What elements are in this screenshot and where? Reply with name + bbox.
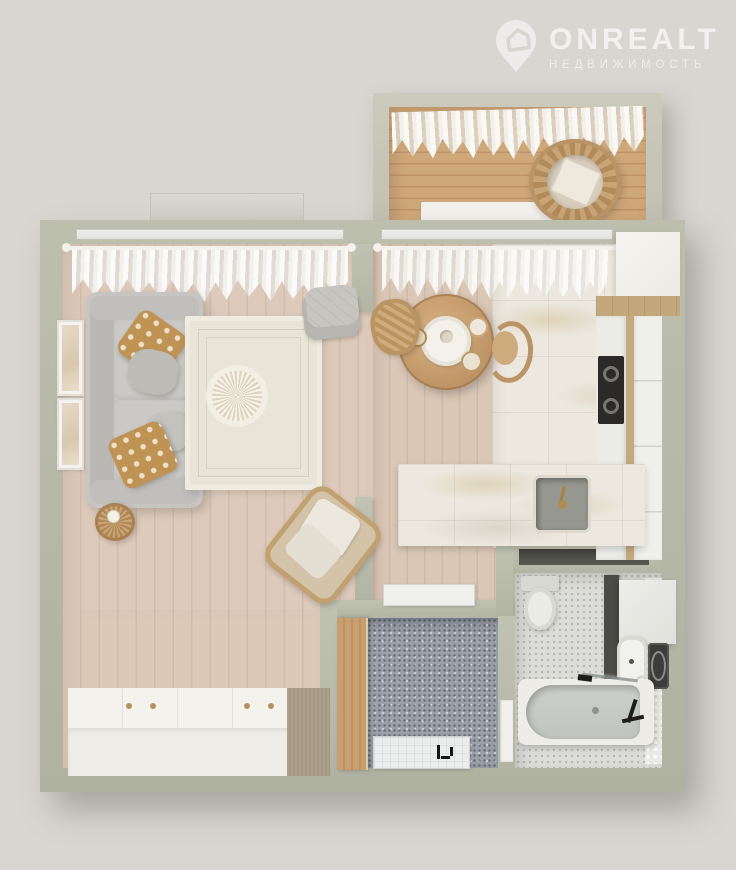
- living-curtain-rod: [66, 246, 352, 250]
- rug-medallion: [206, 365, 268, 427]
- hallway-wood-cabinet: [337, 618, 368, 770]
- shower-bar: [622, 715, 644, 723]
- brand-tagline: НЕДВИЖИМОСТЬ: [549, 59, 720, 71]
- house-pin-icon: [492, 18, 540, 74]
- burner: [603, 366, 619, 382]
- shower-fixture: [622, 699, 648, 727]
- wardrobe-end-section: [287, 688, 330, 776]
- exterior-window-sill: [150, 193, 304, 222]
- threshold-mat: [383, 584, 475, 606]
- kitchen-curtain-rod: [377, 246, 619, 250]
- vase: [440, 330, 453, 343]
- gold-knob: [268, 703, 274, 709]
- bathroom-door: [500, 700, 513, 762]
- wall-picture-frame: [57, 320, 84, 396]
- peninsula-counter: [398, 464, 645, 546]
- frame-artwork: [62, 325, 79, 391]
- cabinet-wood-top: [596, 296, 680, 316]
- wall-vestibule-bathroom: [496, 545, 513, 618]
- toilet: [524, 588, 556, 630]
- gold-knob: [126, 703, 132, 709]
- frame-artwork: [62, 403, 79, 465]
- bathroom-cabinet: [619, 580, 676, 644]
- round-side-table: [95, 503, 135, 541]
- burner: [603, 398, 619, 414]
- area-rug: [185, 316, 322, 490]
- floor-cushions: [300, 283, 365, 343]
- floor-plan-render: ONREALT НЕДВИЖИМОСТЬ: [0, 0, 736, 870]
- table-dish: [461, 351, 482, 372]
- washer-door: [651, 651, 666, 681]
- table-dish: [468, 317, 488, 337]
- refrigerator: [616, 232, 680, 296]
- entrance-doormat: [373, 736, 470, 769]
- hanging-egg-chair: [529, 139, 621, 225]
- watermark-logo: ONREALT НЕДВИЖИМОСТЬ: [492, 18, 720, 74]
- doormat-motif: [437, 744, 457, 761]
- tub-drain: [592, 707, 599, 714]
- sofa-backrest: [90, 302, 114, 498]
- logo-text: ONREALT НЕДВИЖИМОСТЬ: [549, 18, 720, 71]
- living-room-window: [76, 229, 344, 240]
- floor-cushion: [304, 283, 360, 328]
- gold-faucet-base: [558, 500, 567, 509]
- wardrobe: [68, 688, 330, 776]
- gold-knob: [244, 703, 250, 709]
- gold-knob: [150, 703, 156, 709]
- cup: [108, 511, 119, 522]
- chair-seat: [492, 331, 518, 365]
- bathtub: [518, 679, 654, 745]
- wall-picture-frame: [57, 398, 84, 470]
- cooktop: [598, 356, 624, 424]
- screen-bracket: [578, 674, 593, 682]
- brand-name: ONREALT: [549, 24, 720, 56]
- kitchen-window: [381, 229, 613, 240]
